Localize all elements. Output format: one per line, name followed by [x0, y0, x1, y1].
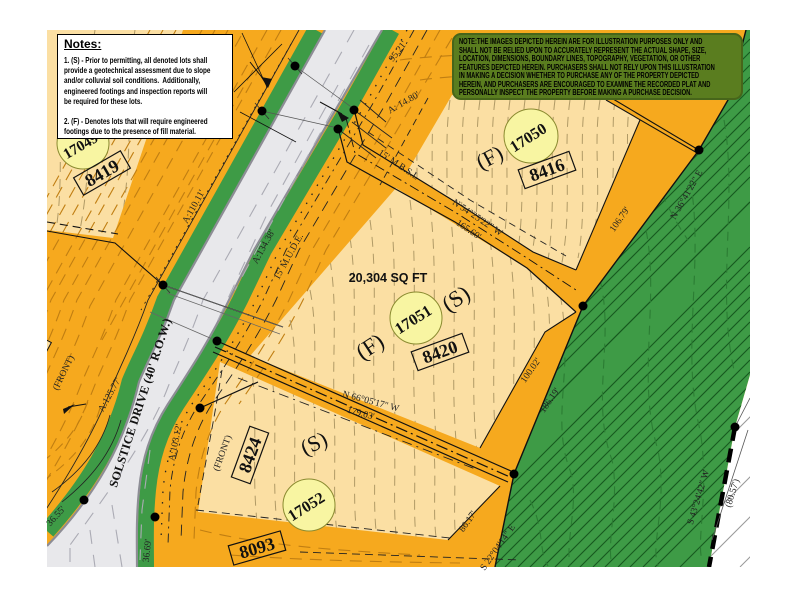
svg-text:20,304 SQ FT: 20,304 SQ FT: [349, 271, 428, 285]
